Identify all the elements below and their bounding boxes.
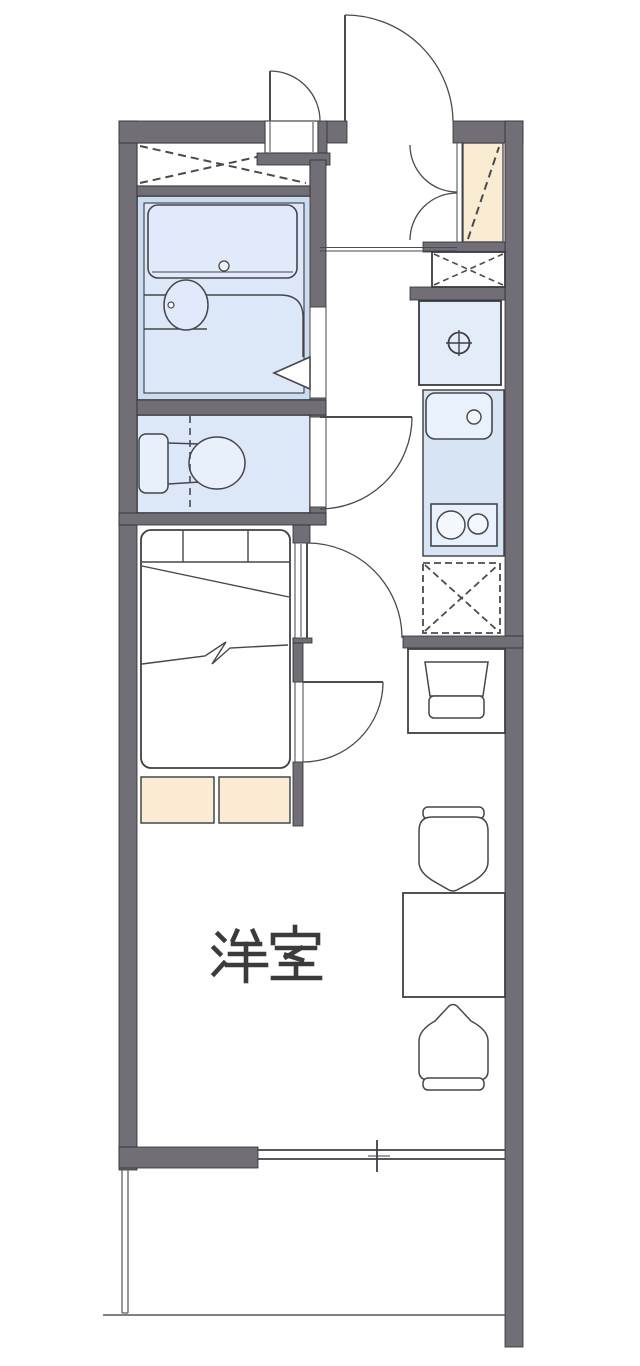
storage-box-left: [141, 777, 214, 823]
floor-plan-drawing: [0, 0, 640, 1366]
window-icon: [258, 1140, 505, 1172]
desk-chair-icon: [425, 662, 488, 696]
desk-icon: [408, 649, 505, 733]
kanji-you: [214, 931, 266, 981]
wall-bathroom-top: [137, 186, 310, 196]
wall-top-1: [119, 121, 265, 143]
wall-left: [119, 121, 137, 1170]
room-door-2-icon: [303, 682, 383, 762]
wall-washing-top: [410, 287, 505, 300]
wall-top-2: [326, 121, 347, 143]
wall-mid-upper: [310, 160, 326, 307]
bathroom-door-frame: [310, 307, 326, 398]
washbasin-icon: [164, 280, 208, 330]
meter-box-icon: [432, 252, 505, 287]
floor-plan: 洋室: [0, 0, 640, 1366]
chair-top-icon: [419, 807, 488, 891]
balcony-outline: [103, 1170, 505, 1315]
wall-toilet-bottom: [119, 513, 326, 525]
bed-icon: [141, 530, 290, 768]
service-door-notch: [265, 121, 318, 153]
bathtub-icon: [148, 205, 297, 278]
stove-icon: [431, 504, 497, 546]
wall-bed-nub: [293, 638, 312, 643]
room-door-1-icon: [307, 543, 402, 638]
room-door-frame-2: [295, 682, 303, 762]
wall-bed-stub: [293, 525, 310, 543]
wall-bathroom-bottom: [137, 400, 326, 415]
toilet-door-icon: [320, 417, 412, 509]
wall-bottom-window-side: [119, 1147, 258, 1168]
main-room-label: [214, 927, 320, 981]
shoe-cabinet-doors-icon: [410, 143, 462, 242]
shoe-cabinet: [463, 143, 503, 242]
wall-bed-mid: [293, 638, 303, 682]
entrance-door-icon: [345, 15, 453, 121]
storage-box-right: [219, 777, 290, 823]
refrigerator-space-icon: [423, 563, 500, 633]
wall-right: [505, 121, 523, 1347]
toilet-door-frame: [310, 417, 326, 507]
table-icon: [403, 893, 505, 997]
wall-desk-top: [403, 636, 523, 648]
wall-bed-low: [293, 762, 303, 826]
dining-set: [403, 807, 505, 1090]
chair-bottom-icon: [419, 1005, 488, 1091]
service-door-icon: [270, 71, 320, 121]
kitchen-sink-icon: [426, 393, 492, 439]
kanji-shitsu: [273, 927, 320, 978]
